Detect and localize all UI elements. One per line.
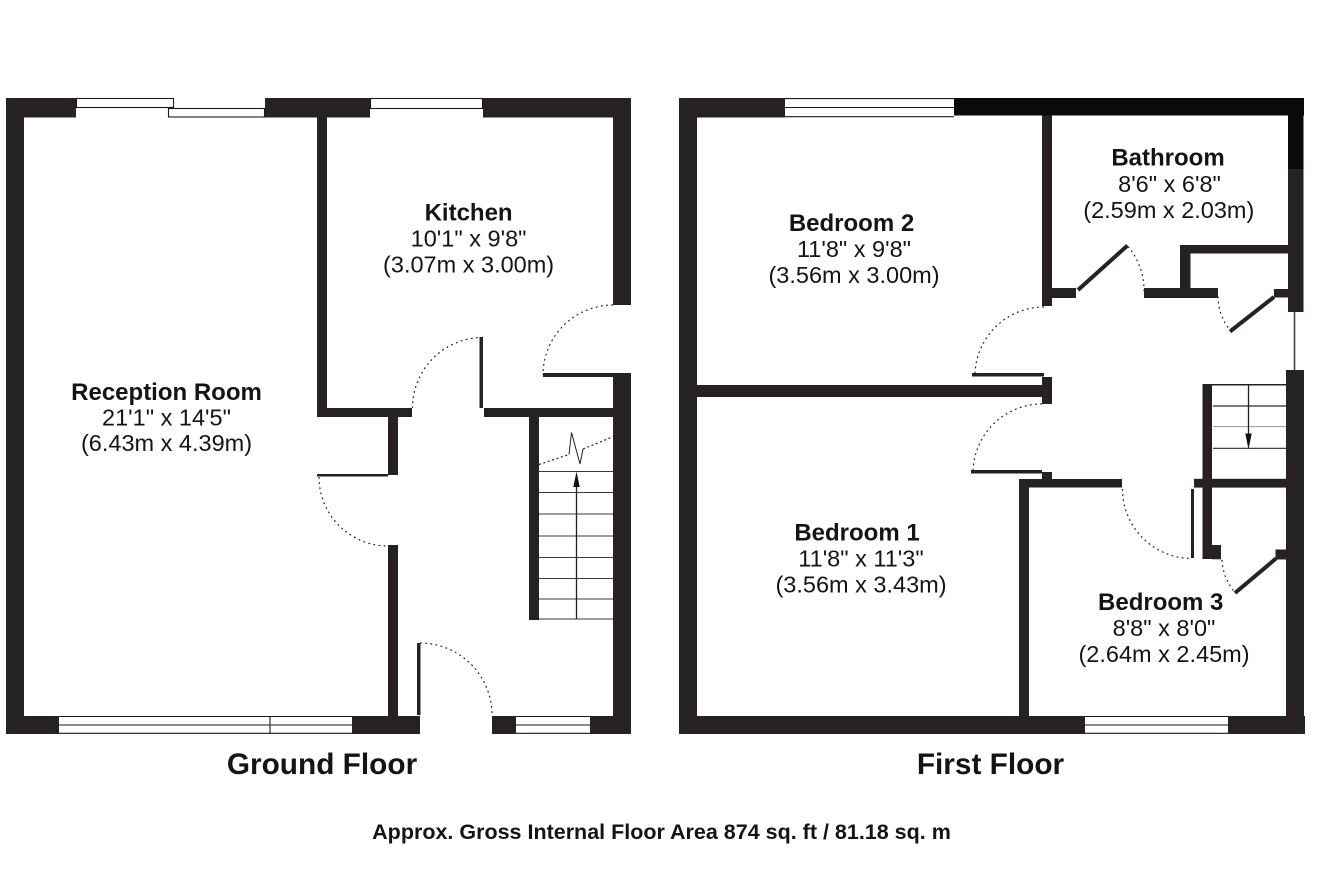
svg-text:(2.64m x 2.45m): (2.64m x 2.45m) — [1078, 641, 1249, 667]
svg-text:(3.07m x 3.00m): (3.07m x 3.00m) — [383, 251, 554, 277]
svg-text:Kitchen: Kitchen — [425, 199, 513, 226]
svg-text:(3.56m x 3.43m): (3.56m x 3.43m) — [775, 572, 946, 598]
svg-text:Reception Room: Reception Room — [71, 379, 262, 406]
svg-text:Bedroom 2: Bedroom 2 — [789, 210, 914, 237]
svg-text:Bedroom 3: Bedroom 3 — [1098, 589, 1223, 616]
svg-text:Bedroom 1: Bedroom 1 — [794, 520, 919, 547]
svg-text:(6.43m x 4.39m): (6.43m x 4.39m) — [81, 430, 252, 456]
svg-text:Ground Floor: Ground Floor — [227, 748, 418, 781]
svg-text:8'8" x 8'0": 8'8" x 8'0" — [1113, 615, 1216, 641]
svg-text:(2.59m x 2.03m): (2.59m x 2.03m) — [1083, 197, 1254, 223]
svg-text:8'6" x 6'8": 8'6" x 6'8" — [1118, 171, 1221, 197]
svg-text:Bathroom: Bathroom — [1111, 145, 1224, 172]
svg-text:Approx. Gross Internal Floor A: Approx. Gross Internal Floor Area 874 sq… — [372, 820, 951, 844]
svg-text:21'1" x 14'5": 21'1" x 14'5" — [102, 404, 231, 430]
svg-text:11'8" x 11'3": 11'8" x 11'3" — [798, 546, 923, 572]
svg-text:11'8" x 9'8": 11'8" x 9'8" — [797, 236, 911, 262]
svg-text:10'1" x 9'8": 10'1" x 9'8" — [411, 225, 527, 251]
svg-text:First Floor: First Floor — [917, 748, 1065, 781]
svg-text:(3.56m x 3.00m): (3.56m x 3.00m) — [768, 262, 939, 288]
